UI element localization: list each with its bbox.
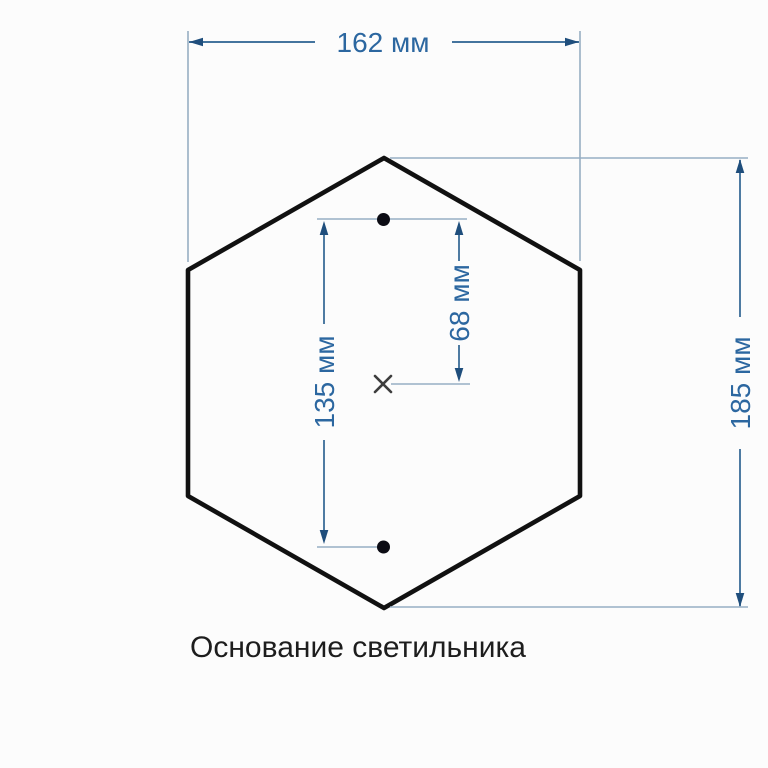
dimension-height: 185 мм — [725, 159, 756, 607]
dimension-width-label: 162 мм — [337, 27, 430, 58]
arrow-left-icon — [189, 38, 203, 47]
arrow-right-icon — [565, 38, 579, 47]
dimension-width: 162 мм — [189, 27, 579, 58]
arrow-down-icon — [320, 530, 329, 544]
arrow-up-icon — [455, 221, 464, 235]
center-mark-icon — [375, 376, 391, 392]
mounting-hole-bottom-icon — [377, 541, 390, 554]
arrow-down-icon — [455, 368, 464, 382]
mounting-hole-top-icon — [377, 213, 390, 226]
dimension-hole-spacing-label: 135 мм — [309, 336, 340, 429]
dimension-center-to-hole: 68 мм — [444, 221, 475, 382]
arrow-down-icon — [736, 593, 745, 607]
dimension-height-label: 185 мм — [725, 337, 756, 430]
caption: Основание светильника — [190, 631, 526, 664]
dimension-hole-spacing: 135 мм — [309, 221, 340, 544]
arrow-up-icon — [320, 221, 329, 235]
drawing-page: 162 мм 185 мм 135 мм 68 мм — [0, 0, 768, 768]
dimension-center-to-hole-label: 68 мм — [444, 264, 475, 341]
arrow-up-icon — [736, 159, 745, 173]
lamp-base-technical-drawing: 162 мм 185 мм 135 мм 68 мм — [0, 0, 768, 768]
